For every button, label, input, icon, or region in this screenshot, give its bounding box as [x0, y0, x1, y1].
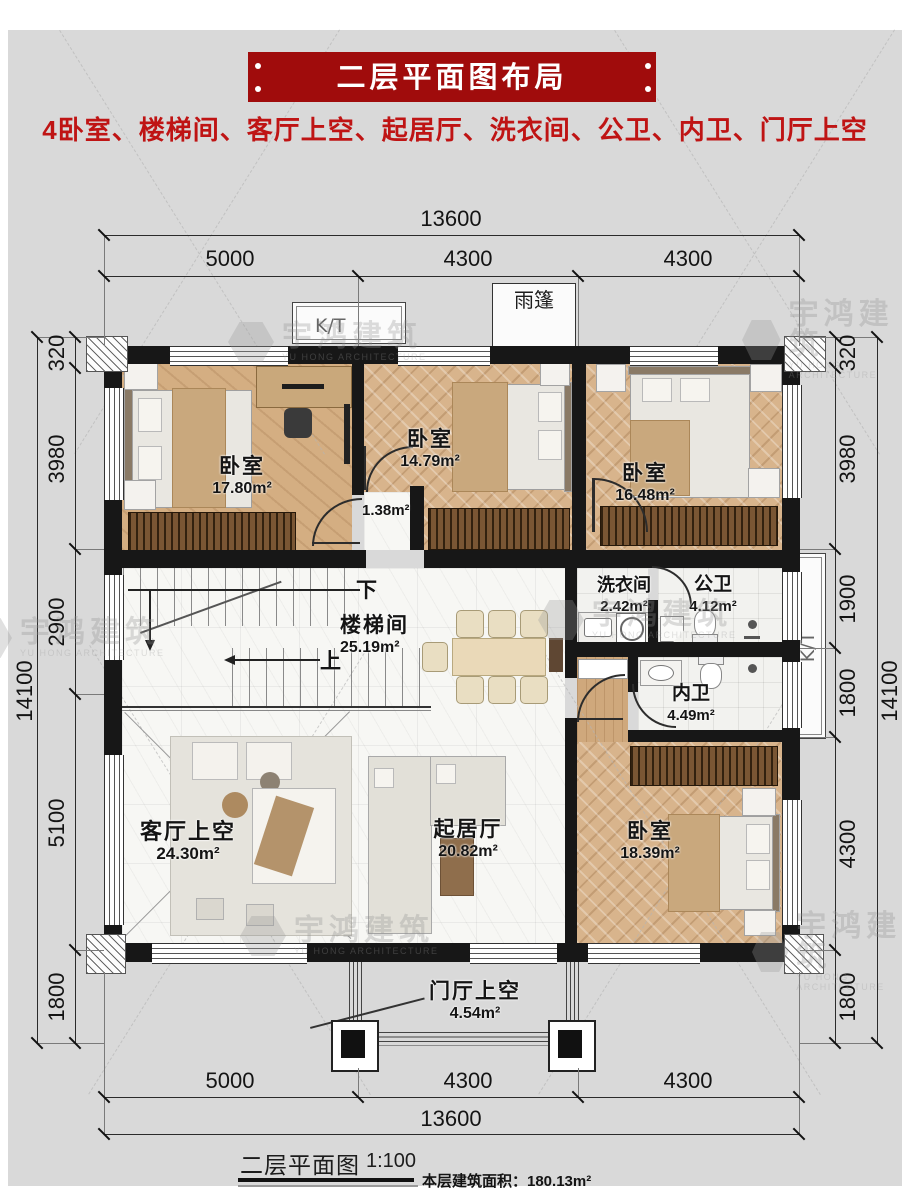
dim-text: 4300 [418, 1068, 518, 1094]
dim-line [104, 1134, 799, 1135]
floor-drain [748, 620, 757, 629]
chair [520, 610, 548, 638]
title-underline-2 [238, 1185, 418, 1187]
room-area: 18.39m² [610, 844, 690, 863]
dim-text: 14100 [12, 641, 38, 741]
wardrobe [428, 508, 570, 550]
room-label-laundry: 洗衣间 2.42m² [584, 573, 664, 616]
room-label-bedroom3: 卧室 16.48m² [605, 462, 685, 505]
round-table [222, 792, 248, 818]
window [782, 385, 802, 498]
drawing-title: 二层平面图 [240, 1146, 360, 1180]
window [398, 346, 490, 366]
wall [565, 568, 577, 678]
porch-column-core [558, 1030, 582, 1058]
pillow [436, 764, 456, 784]
room-name: 卧室 [610, 820, 690, 844]
corner-pier [784, 934, 824, 974]
page-title: 二层平面图布局 [248, 52, 656, 102]
dim-line [75, 337, 76, 1043]
hall-console [549, 638, 563, 672]
dim-ext [799, 972, 800, 1134]
room-name: 门厅上空 [415, 980, 535, 1004]
wall [628, 730, 782, 742]
monitor [282, 384, 324, 389]
room-name: 卧室 [605, 462, 685, 486]
dim-ext [75, 694, 104, 695]
dim-line [104, 1097, 799, 1098]
nightstand [744, 910, 776, 936]
pillow [642, 378, 672, 402]
dim-text: 4300 [638, 246, 738, 272]
tv [344, 404, 350, 464]
dim-ext [578, 1068, 579, 1097]
window [104, 388, 124, 500]
dim-text: 1800 [835, 947, 861, 1047]
pillow [680, 378, 710, 402]
wall [307, 943, 470, 962]
chair [520, 676, 548, 704]
window [630, 346, 718, 366]
stair-up-arrowhead [224, 655, 235, 665]
stair-up-label: 上 [320, 645, 341, 675]
dim-ext [800, 737, 835, 738]
stair-arrow-line [149, 589, 151, 641]
wall [424, 550, 782, 568]
window [104, 575, 124, 660]
stair-edge [121, 710, 431, 711]
room-label-living-void: 客厅上空 24.30m² [118, 820, 258, 863]
dim-text: 5000 [180, 246, 280, 272]
wardrobe [128, 512, 296, 551]
rooms-summary: 4卧室、楼梯间、客厅上空、起居厅、洗衣间、公卫、内卫、门厅上空 [0, 110, 910, 147]
dim-text: 1900 [835, 549, 861, 649]
armchair [192, 742, 238, 780]
drawing-scale: 1:100 [366, 1150, 416, 1173]
window [782, 800, 802, 925]
dim-text: 3980 [44, 409, 70, 509]
porch-lines [566, 962, 579, 1022]
window [170, 346, 288, 366]
wall [782, 728, 800, 800]
window [470, 943, 557, 964]
room-label-private-bath: 内卫 4.49m² [656, 682, 726, 725]
wall [104, 660, 122, 755]
banner-dot [645, 63, 651, 69]
pillow [538, 430, 562, 460]
dim-ext [358, 1068, 359, 1097]
window [782, 662, 802, 728]
dim-ext [104, 972, 105, 1134]
towel-bar [744, 636, 760, 639]
pillow [746, 860, 770, 890]
wall [352, 364, 364, 495]
dim-ext [800, 950, 835, 951]
room-area: 4.12m² [678, 597, 748, 616]
wall [565, 642, 782, 657]
room-label-family: 起居厅 20.82m² [428, 818, 508, 861]
chair [488, 610, 516, 638]
window [782, 572, 802, 640]
dim-text: 1800 [835, 643, 861, 743]
nightstand [750, 364, 782, 392]
nightstand [596, 364, 626, 392]
room-area: 2.42m² [584, 597, 664, 616]
dim-ext [800, 648, 835, 649]
room-name: 卧室 [390, 428, 470, 452]
nightstand [742, 788, 776, 816]
dim-text: 4300 [835, 794, 861, 894]
room-area: 24.30m² [118, 844, 258, 863]
room-area: 16.48m² [605, 486, 685, 505]
room-label-stairwell: 楼梯间 25.19m² [340, 614, 440, 657]
title-underline [238, 1178, 414, 1182]
corner-pier [86, 934, 126, 974]
pillow [746, 824, 770, 854]
nightstand [748, 468, 780, 498]
room-label-public-bath: 公卫 4.12m² [678, 573, 748, 616]
stair-edge [121, 706, 431, 708]
wall [782, 640, 800, 662]
banner-dot [645, 86, 651, 92]
pillow [138, 398, 162, 432]
room-area: 25.19m² [340, 638, 440, 657]
room-area: 14.79m² [390, 452, 470, 471]
room-label-foyer-void: 门厅上空 4.54m² [415, 980, 535, 1023]
dim-text: 4300 [638, 1068, 738, 1094]
floor-plan-poster: 二层平面图布局 4卧室、楼梯间、客厅上空、起居厅、洗衣间、公卫、内卫、门厅上空 [0, 0, 910, 1200]
wall [565, 718, 577, 943]
stair-down-label: 下 [356, 574, 377, 604]
stair-arrow-line [234, 659, 320, 661]
chair [456, 676, 484, 704]
dim-ext [799, 235, 800, 346]
banner-dot [255, 63, 261, 69]
dim-ext [75, 549, 104, 550]
pillow [374, 768, 394, 788]
dining-table [452, 638, 546, 676]
dim-text: 5100 [44, 773, 70, 873]
room-label-bedroom4: 卧室 18.39m² [610, 820, 690, 863]
laundry-sink [584, 618, 612, 637]
floor-drain [748, 664, 757, 673]
dim-text: 4300 [418, 246, 518, 272]
wall [104, 500, 122, 575]
desk-chair [284, 408, 312, 438]
kt-label: K/T [315, 315, 345, 337]
room-label-bedroom2: 卧室 14.79m² [390, 428, 470, 471]
dim-line [104, 276, 799, 277]
dim-text: 2900 [44, 572, 70, 672]
chair [488, 676, 516, 704]
wall [557, 943, 588, 962]
porch-column-core [341, 1030, 365, 1058]
room-area: 20.82m² [428, 842, 508, 861]
nightstand [124, 360, 158, 390]
stool [196, 898, 224, 920]
wall [782, 498, 800, 572]
room-name: 起居厅 [428, 818, 508, 842]
kt-balcony-top: K/T [292, 302, 406, 344]
window [152, 943, 307, 964]
dim-text: 320 [835, 303, 861, 403]
wall [121, 550, 366, 568]
nook-floor [364, 492, 410, 550]
dim-ext [800, 549, 835, 550]
room-name: 洗衣间 [584, 573, 664, 597]
washing-machine-drum [620, 617, 644, 641]
room-name: 楼梯间 [340, 614, 440, 638]
chair [456, 610, 484, 638]
dim-text: 14100 [877, 641, 903, 741]
room-label-bedroom1: 卧室 17.80m² [202, 455, 282, 498]
wall [490, 346, 630, 364]
room-name: 内卫 [656, 682, 726, 706]
dim-text: 13600 [401, 1106, 501, 1132]
nightstand [124, 480, 156, 510]
headboard [772, 814, 780, 912]
window [588, 943, 700, 964]
dim-text: 320 [44, 303, 70, 403]
canopy-label: 雨篷 [514, 290, 554, 312]
floor-area-note: 本层建筑面积：180.13m² [422, 1170, 591, 1191]
corner-pier [784, 336, 826, 372]
room-area: 4.54m² [415, 1004, 535, 1023]
wardrobe [630, 746, 778, 786]
room-area: 17.80m² [202, 479, 282, 498]
room-name: 客厅上空 [118, 820, 258, 844]
dim-text: 3980 [835, 409, 861, 509]
room-name: 公卫 [678, 573, 748, 597]
stair-down-arrowhead [145, 640, 155, 651]
wall [410, 486, 424, 550]
pillow [538, 392, 562, 422]
banner-dot [255, 86, 261, 92]
canopy-box: 雨篷 [492, 283, 576, 349]
nook-area-label: 1.38m² [362, 502, 410, 519]
wall [572, 364, 586, 550]
dim-text: 1800 [44, 947, 70, 1047]
room-name: 卧室 [202, 455, 282, 479]
dim-text: 13600 [401, 206, 501, 232]
stair-arrow-line [128, 589, 360, 591]
dim-ext [358, 276, 359, 346]
pillow [138, 446, 162, 480]
stool [246, 904, 274, 926]
room-area: 4.49m² [656, 706, 726, 725]
dim-ext [75, 950, 104, 951]
headboard [628, 366, 752, 375]
dim-line [104, 235, 799, 236]
corner-pier [86, 336, 128, 372]
dim-ext [104, 235, 105, 346]
wash-basin [648, 665, 674, 681]
dim-ext [578, 276, 579, 346]
dim-text: 5000 [180, 1068, 280, 1094]
wall [288, 346, 398, 364]
headboard [564, 382, 572, 492]
porch-beam-lines [373, 1032, 550, 1046]
